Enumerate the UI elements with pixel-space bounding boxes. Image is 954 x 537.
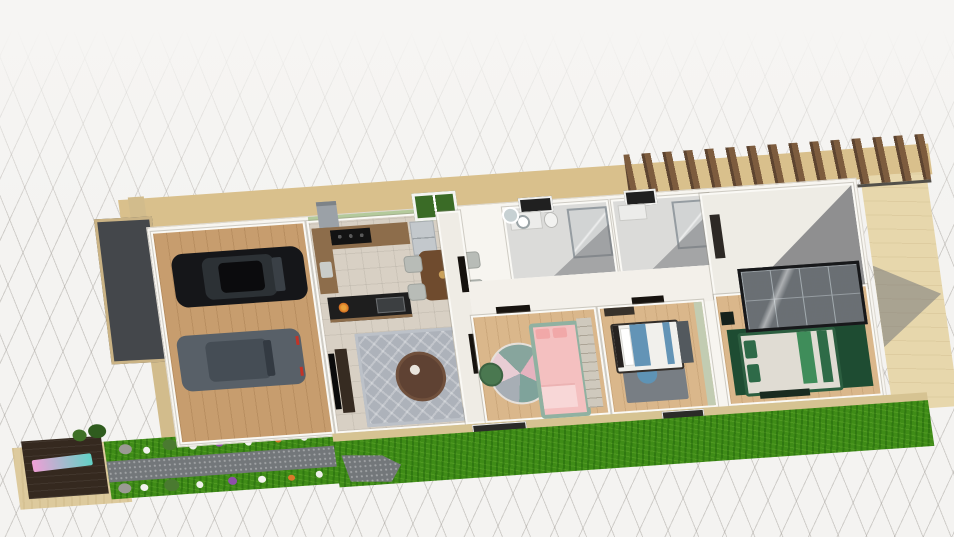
rock <box>118 483 132 494</box>
flower-white[interactable] <box>143 447 151 454</box>
pillow <box>747 364 761 383</box>
flower-white[interactable] <box>315 471 323 478</box>
pillow <box>552 327 567 338</box>
vanity[interactable] <box>617 203 647 221</box>
gradient-bench[interactable] <box>31 453 93 472</box>
floorplan-3d-viewport[interactable] <box>0 0 954 537</box>
room-bathroom-1[interactable] <box>504 202 616 279</box>
kitchen-sink[interactable] <box>319 261 333 278</box>
dining-chair[interactable] <box>407 283 427 301</box>
island-sink <box>376 296 406 313</box>
table-deco <box>409 365 420 376</box>
room-bedroom-blue[interactable] <box>600 302 716 412</box>
pillow <box>535 328 550 339</box>
bed-green[interactable] <box>737 326 844 396</box>
sedan-taillight <box>300 367 304 376</box>
dining-chair[interactable] <box>403 255 423 273</box>
wall-shadow <box>873 261 948 347</box>
toilet[interactable] <box>543 212 559 229</box>
suv-car[interactable] <box>170 245 309 308</box>
gravel-patch <box>341 451 403 485</box>
suv-roof <box>218 260 266 293</box>
gravel-path <box>106 445 342 482</box>
flower-purple[interactable] <box>228 477 238 486</box>
wardrobe[interactable] <box>709 214 725 258</box>
glass-closet[interactable] <box>737 261 868 333</box>
plant[interactable] <box>87 424 107 439</box>
flower-white[interactable] <box>140 484 149 492</box>
flower-orange[interactable] <box>288 475 296 481</box>
green-blanket <box>796 331 817 384</box>
sedan-cabin <box>205 338 272 382</box>
room-bedroom-pink[interactable] <box>473 309 608 421</box>
pillow <box>743 340 757 359</box>
room-garage[interactable] <box>153 223 332 442</box>
blue-stripe <box>662 322 675 364</box>
bush[interactable] <box>163 479 180 492</box>
sedan-car[interactable] <box>175 328 307 392</box>
plant[interactable] <box>72 429 88 442</box>
nightstand[interactable] <box>720 312 735 326</box>
room-bathroom-2[interactable] <box>613 195 717 271</box>
bed-blue[interactable] <box>610 319 685 373</box>
dresser[interactable] <box>604 306 635 316</box>
flower-white[interactable] <box>258 476 267 484</box>
bush[interactable] <box>162 439 178 451</box>
rock <box>118 444 132 455</box>
deck[interactable] <box>21 436 109 499</box>
flower-decor <box>338 302 349 313</box>
accent-wall <box>694 302 716 406</box>
house-scene <box>0 132 954 537</box>
cooktop[interactable] <box>330 228 372 246</box>
sedan-taillight <box>295 336 299 345</box>
green-blanket <box>816 330 833 382</box>
flower-white[interactable] <box>196 481 204 488</box>
blanket-fold <box>541 383 578 409</box>
